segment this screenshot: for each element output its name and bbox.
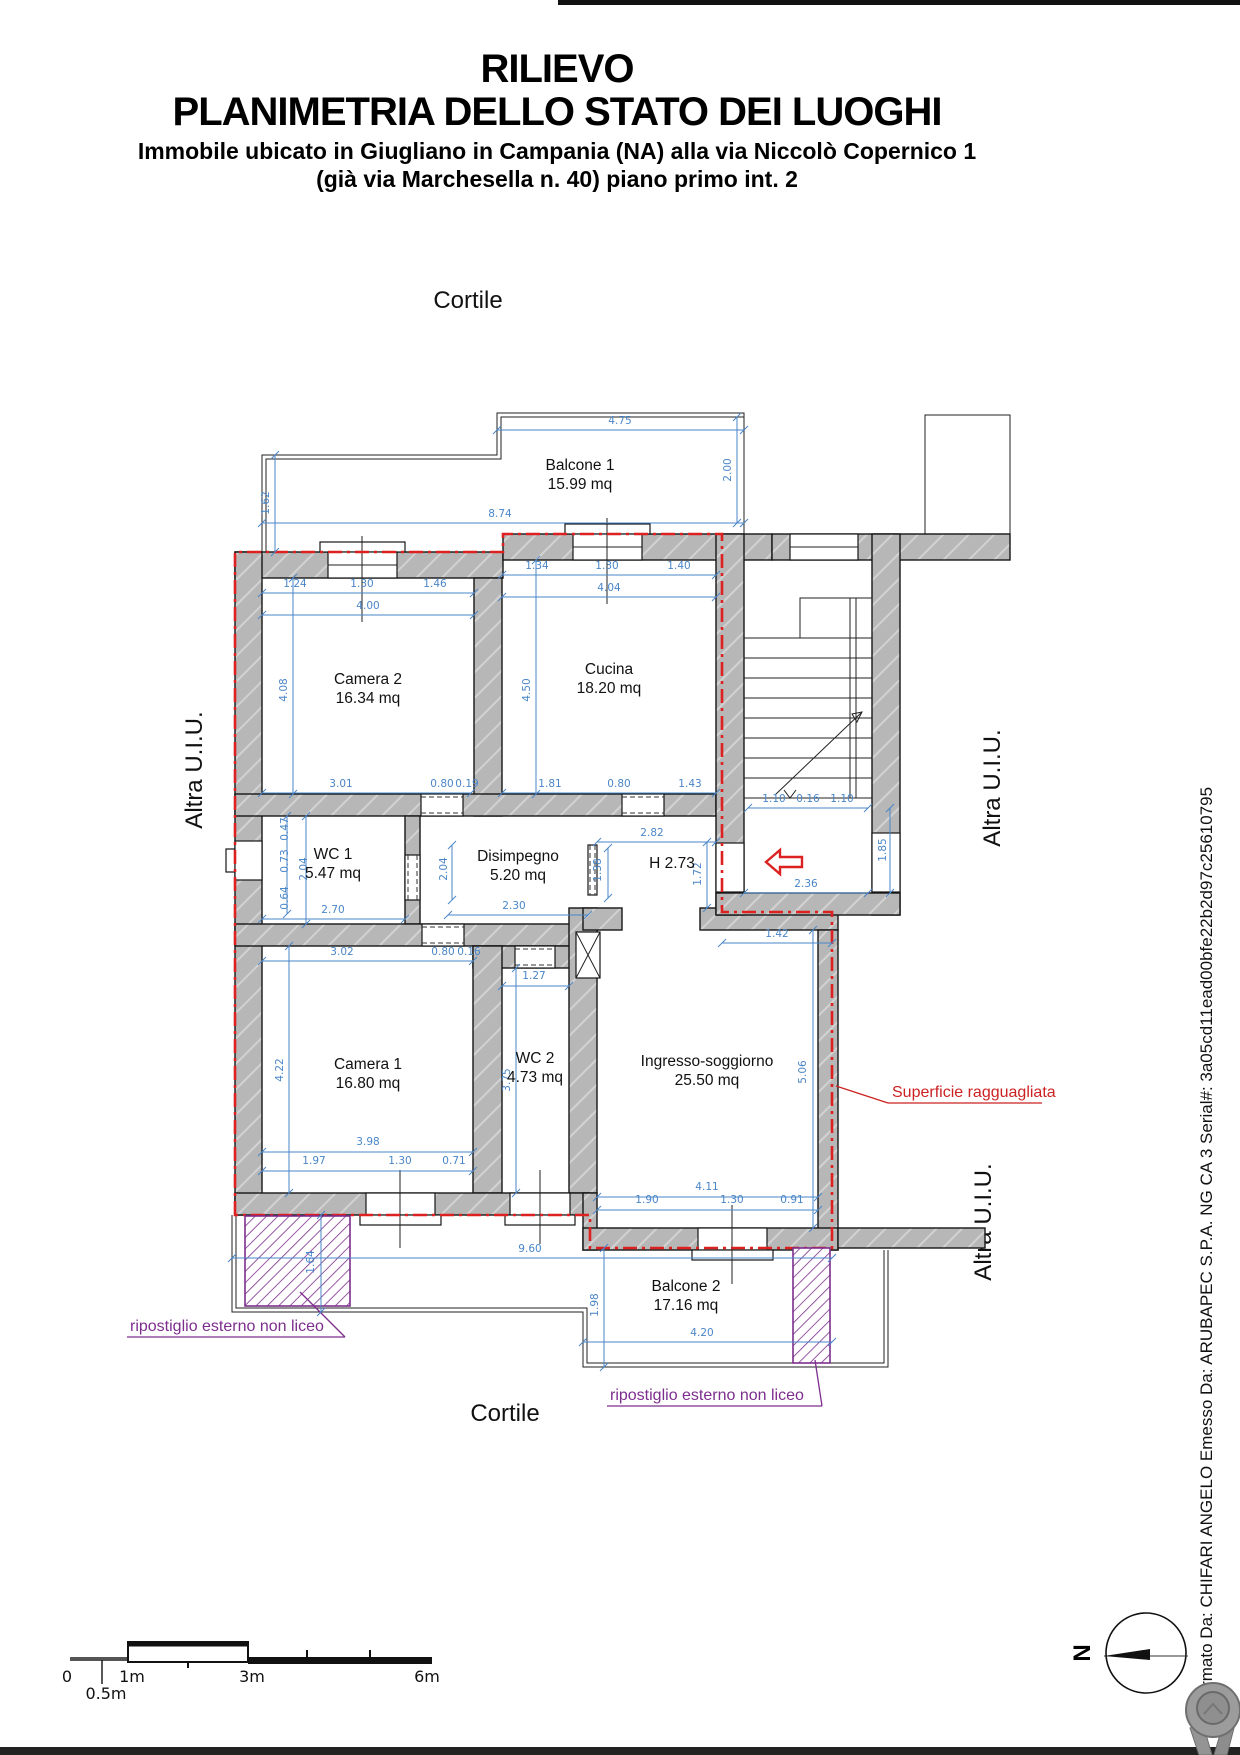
room-area-label: 5.47 mq xyxy=(305,865,361,882)
dimension-label: 1.24 xyxy=(283,578,307,590)
dimension-label: 3.02 xyxy=(330,946,353,958)
scale-bar: 0 1m 3m 6m 0.5m xyxy=(62,1642,440,1703)
room-label: Balcone 1 xyxy=(546,457,615,474)
dimension-label: 1.46 xyxy=(423,578,447,590)
north-label: N xyxy=(1069,1644,1096,1661)
title-line-1: RILIEVO xyxy=(0,48,1114,91)
ripostiglio-label-2: ripostiglio esterno non liceo xyxy=(610,1387,804,1404)
dimension-label: 1.42 xyxy=(765,928,788,940)
top-edge-bar xyxy=(558,0,1240,5)
dimension-label: 0.64 xyxy=(279,886,291,910)
dimension-label: 2.30 xyxy=(502,900,525,912)
dimension-label: 4.50 xyxy=(521,678,533,701)
superficie-label: Superficie ragguagliata xyxy=(892,1084,1056,1101)
seal-ribbon-icon xyxy=(1186,1683,1240,1755)
other-unit-label-left: Altra U.I.U. xyxy=(181,711,208,828)
dimension-label: 2.70 xyxy=(321,904,344,916)
room-area-label: 15.99 mq xyxy=(548,476,613,493)
dimension-label: 1.30 xyxy=(350,578,373,590)
dimension-label: 0.16 xyxy=(457,946,481,958)
dimension-label: 0.16 xyxy=(796,793,820,805)
room-label: H 2.73 xyxy=(649,855,695,872)
room-label: Balcone 2 xyxy=(652,1278,721,1295)
dimension-label: 4.11 xyxy=(695,1181,718,1193)
dimension-label: 2.82 xyxy=(640,827,663,839)
dimension-label: 4.04 xyxy=(597,582,621,594)
dimension-label: 1.90 xyxy=(635,1194,658,1206)
dimension-label: 8.74 xyxy=(488,508,512,520)
dimension-label: 0.73 xyxy=(279,849,291,872)
dimension-label: 1.97 xyxy=(302,1155,325,1167)
dimension-label: 4.75 xyxy=(608,415,631,427)
dimension-label: 2.00 xyxy=(722,458,734,481)
room-label: Ingresso-soggiorno xyxy=(641,1053,774,1070)
dimension-label: 1.10 xyxy=(830,793,853,805)
dimension-label: 9.60 xyxy=(518,1243,541,1255)
other-unit-label-right-bottom: Altra U.I.U. xyxy=(970,1163,997,1280)
dimension-label: 0.80 xyxy=(431,946,454,958)
dimension-label: 1.62 xyxy=(260,491,272,514)
dimension-label: 1.30 xyxy=(388,1155,411,1167)
entrance-arrow-icon xyxy=(766,850,802,874)
dimension-label: 1.38 xyxy=(592,858,604,881)
room-area-label: 17.16 mq xyxy=(654,1297,719,1314)
title-line-2: PLANIMETRIA DELLO STATO DEI LUOGHI xyxy=(0,91,1114,134)
dimension-label: 1.43 xyxy=(678,778,701,790)
dimension-label: 3.01 xyxy=(329,778,352,790)
dimension-label: 1.98 xyxy=(589,1293,601,1316)
dimension-label: 0.80 xyxy=(430,778,453,790)
dimension-label: 1.85 xyxy=(877,838,889,861)
dimension-label: 5.06 xyxy=(797,1060,809,1084)
dimension-label: 2.04 xyxy=(438,857,450,881)
bottom-edge-bar xyxy=(0,1747,1240,1755)
dimension-label: 1.34 xyxy=(525,560,549,572)
subtitle-line-2: (già via Marchesella n. 40) piano primo … xyxy=(0,166,1114,193)
room-area-label: 4.73 mq xyxy=(507,1069,563,1086)
external-storage-hatch-1 xyxy=(245,1216,350,1306)
room-area-label: 16.34 mq xyxy=(336,690,401,707)
dimension-label: 0.71 xyxy=(442,1155,465,1167)
room-label: Camera 1 xyxy=(334,1056,402,1073)
room-label: WC 1 xyxy=(314,846,353,863)
floor-plan-svg: Cortile Cortile Altra U.I.U. Altra U.I.U… xyxy=(0,0,1240,1755)
digital-signature-text: Firmato Da: CHIFARI ANGELO Emesso Da: AR… xyxy=(1197,787,1216,1701)
dimension-label: 0.91 xyxy=(780,1194,803,1206)
external-storage-hatch-2 xyxy=(793,1248,830,1363)
subtitle-line-1: Immobile ubicato in Giugliano in Campani… xyxy=(0,138,1114,165)
dimension-label: 1.81 xyxy=(538,778,561,790)
courtyard-label-bottom: Cortile xyxy=(470,1400,539,1427)
shaft-box xyxy=(576,932,600,978)
dimension-label: 0.19 xyxy=(455,778,478,790)
dimension-label: 4.00 xyxy=(356,600,379,612)
room-label: Camera 2 xyxy=(334,671,402,688)
balcony1-outline xyxy=(262,413,744,552)
dimension-label: 1.40 xyxy=(667,560,690,572)
superficie-annotation: Superficie ragguagliata xyxy=(836,1084,1056,1103)
dimension-label: 2.36 xyxy=(794,878,818,890)
other-unit-label-right-top: Altra U.I.U. xyxy=(979,729,1006,846)
dimension-label: 1.10 xyxy=(762,793,785,805)
room-area-label: 25.50 mq xyxy=(675,1072,740,1089)
room-label: Cucina xyxy=(585,661,634,678)
dimension-label: 1.64 xyxy=(305,1250,317,1274)
room-area-label: 16.80 mq xyxy=(336,1075,401,1092)
dimension-label: 0.47 xyxy=(279,817,291,840)
scale-05m: 0.5m xyxy=(85,1684,126,1703)
dimension-label: 3.98 xyxy=(356,1136,379,1148)
room-label: Disimpegno xyxy=(477,848,559,865)
dimension-label: 0.80 xyxy=(607,778,630,790)
dimension-label: 1.30 xyxy=(595,560,618,572)
room-label: WC 2 xyxy=(516,1050,555,1067)
drawing-sheet: RILIEVO PLANIMETRIA DELLO STATO DEI LUOG… xyxy=(0,0,1240,1755)
dimension-label: 4.08 xyxy=(278,678,290,701)
dimension-label: 1.30 xyxy=(720,1194,743,1206)
ripostiglio-label-1: ripostiglio esterno non liceo xyxy=(130,1318,324,1335)
dimension-label: 4.20 xyxy=(690,1327,713,1339)
courtyard-label-top: Cortile xyxy=(433,287,502,314)
room-area-label: 18.20 mq xyxy=(577,680,642,697)
drawing-header: RILIEVO PLANIMETRIA DELLO STATO DEI LUOG… xyxy=(0,48,1114,193)
scale-6m: 6m xyxy=(414,1667,440,1686)
room-area-label: 5.20 mq xyxy=(490,867,546,884)
scale-3m: 3m xyxy=(239,1667,265,1686)
north-compass: N xyxy=(1069,1613,1188,1693)
dimension-label: 1.27 xyxy=(522,970,545,982)
neighbor-balcony-outline xyxy=(925,415,1010,534)
scale-0: 0 xyxy=(62,1667,72,1686)
dimension-label: 4.22 xyxy=(274,1058,286,1081)
